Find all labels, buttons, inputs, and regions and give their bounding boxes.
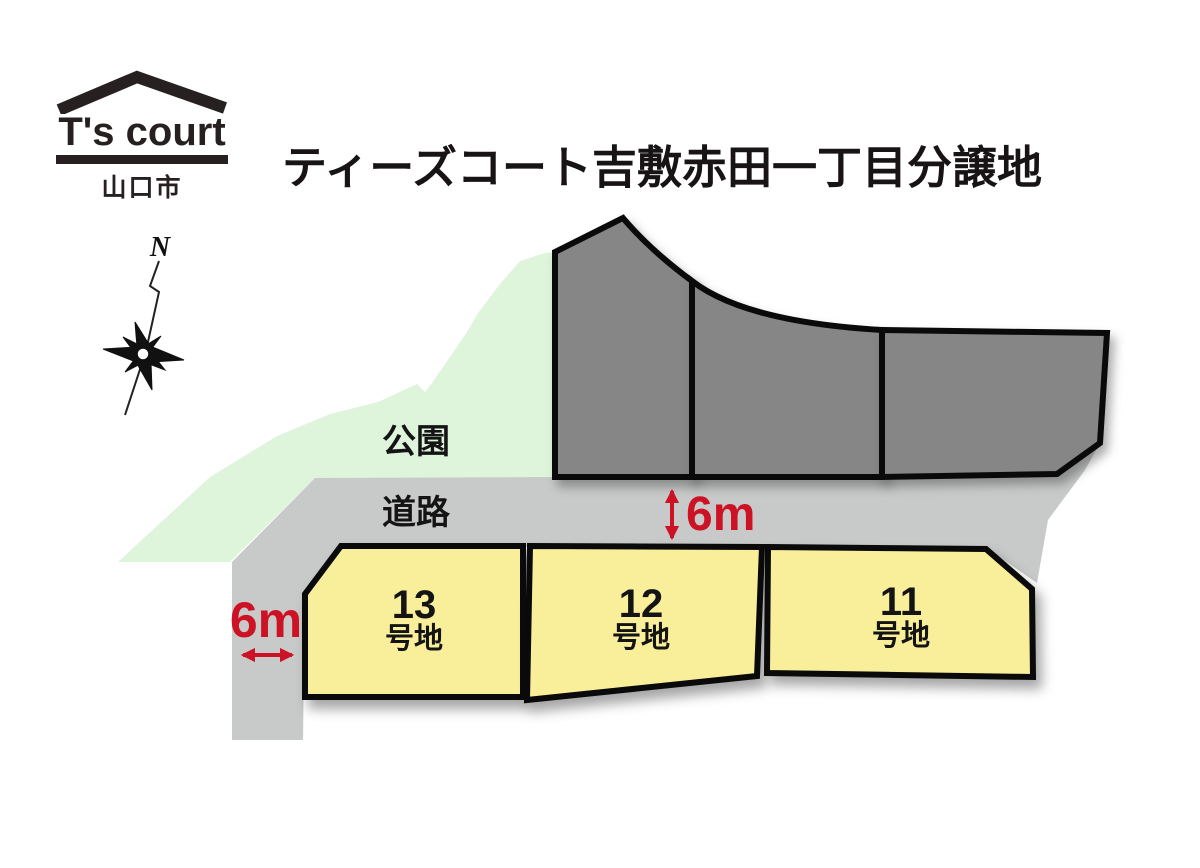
site-plan: 13 号地 12 号地 11 号地 公園 道路 6m 6m N: [0, 0, 1200, 868]
compass-needle: [146, 261, 159, 351]
park-label: 公園: [382, 423, 450, 461]
side-road-width-dimension: 6m: [230, 592, 302, 655]
lot-13-suffix: 号地: [385, 622, 443, 655]
road-width-value: 6m: [686, 488, 755, 541]
compass-hub: [137, 348, 150, 361]
lot-12-number: 12: [619, 582, 664, 626]
lot-11-number: 11: [880, 580, 922, 624]
compass-north-label: N: [149, 232, 172, 263]
lot-13-number: 13: [392, 583, 437, 627]
side-road-width-value: 6m: [230, 592, 302, 648]
compass: N: [103, 232, 184, 415]
lot-12-suffix: 号地: [612, 621, 670, 654]
road-label: 道路: [382, 494, 451, 532]
reserved-parcel-shape: [882, 330, 1107, 477]
reserved-parcel-shape: [692, 281, 882, 477]
lot-11-suffix: 号地: [872, 619, 930, 652]
reserved-parcel-shape: [555, 218, 692, 477]
reserved-parcels: [555, 218, 1107, 477]
